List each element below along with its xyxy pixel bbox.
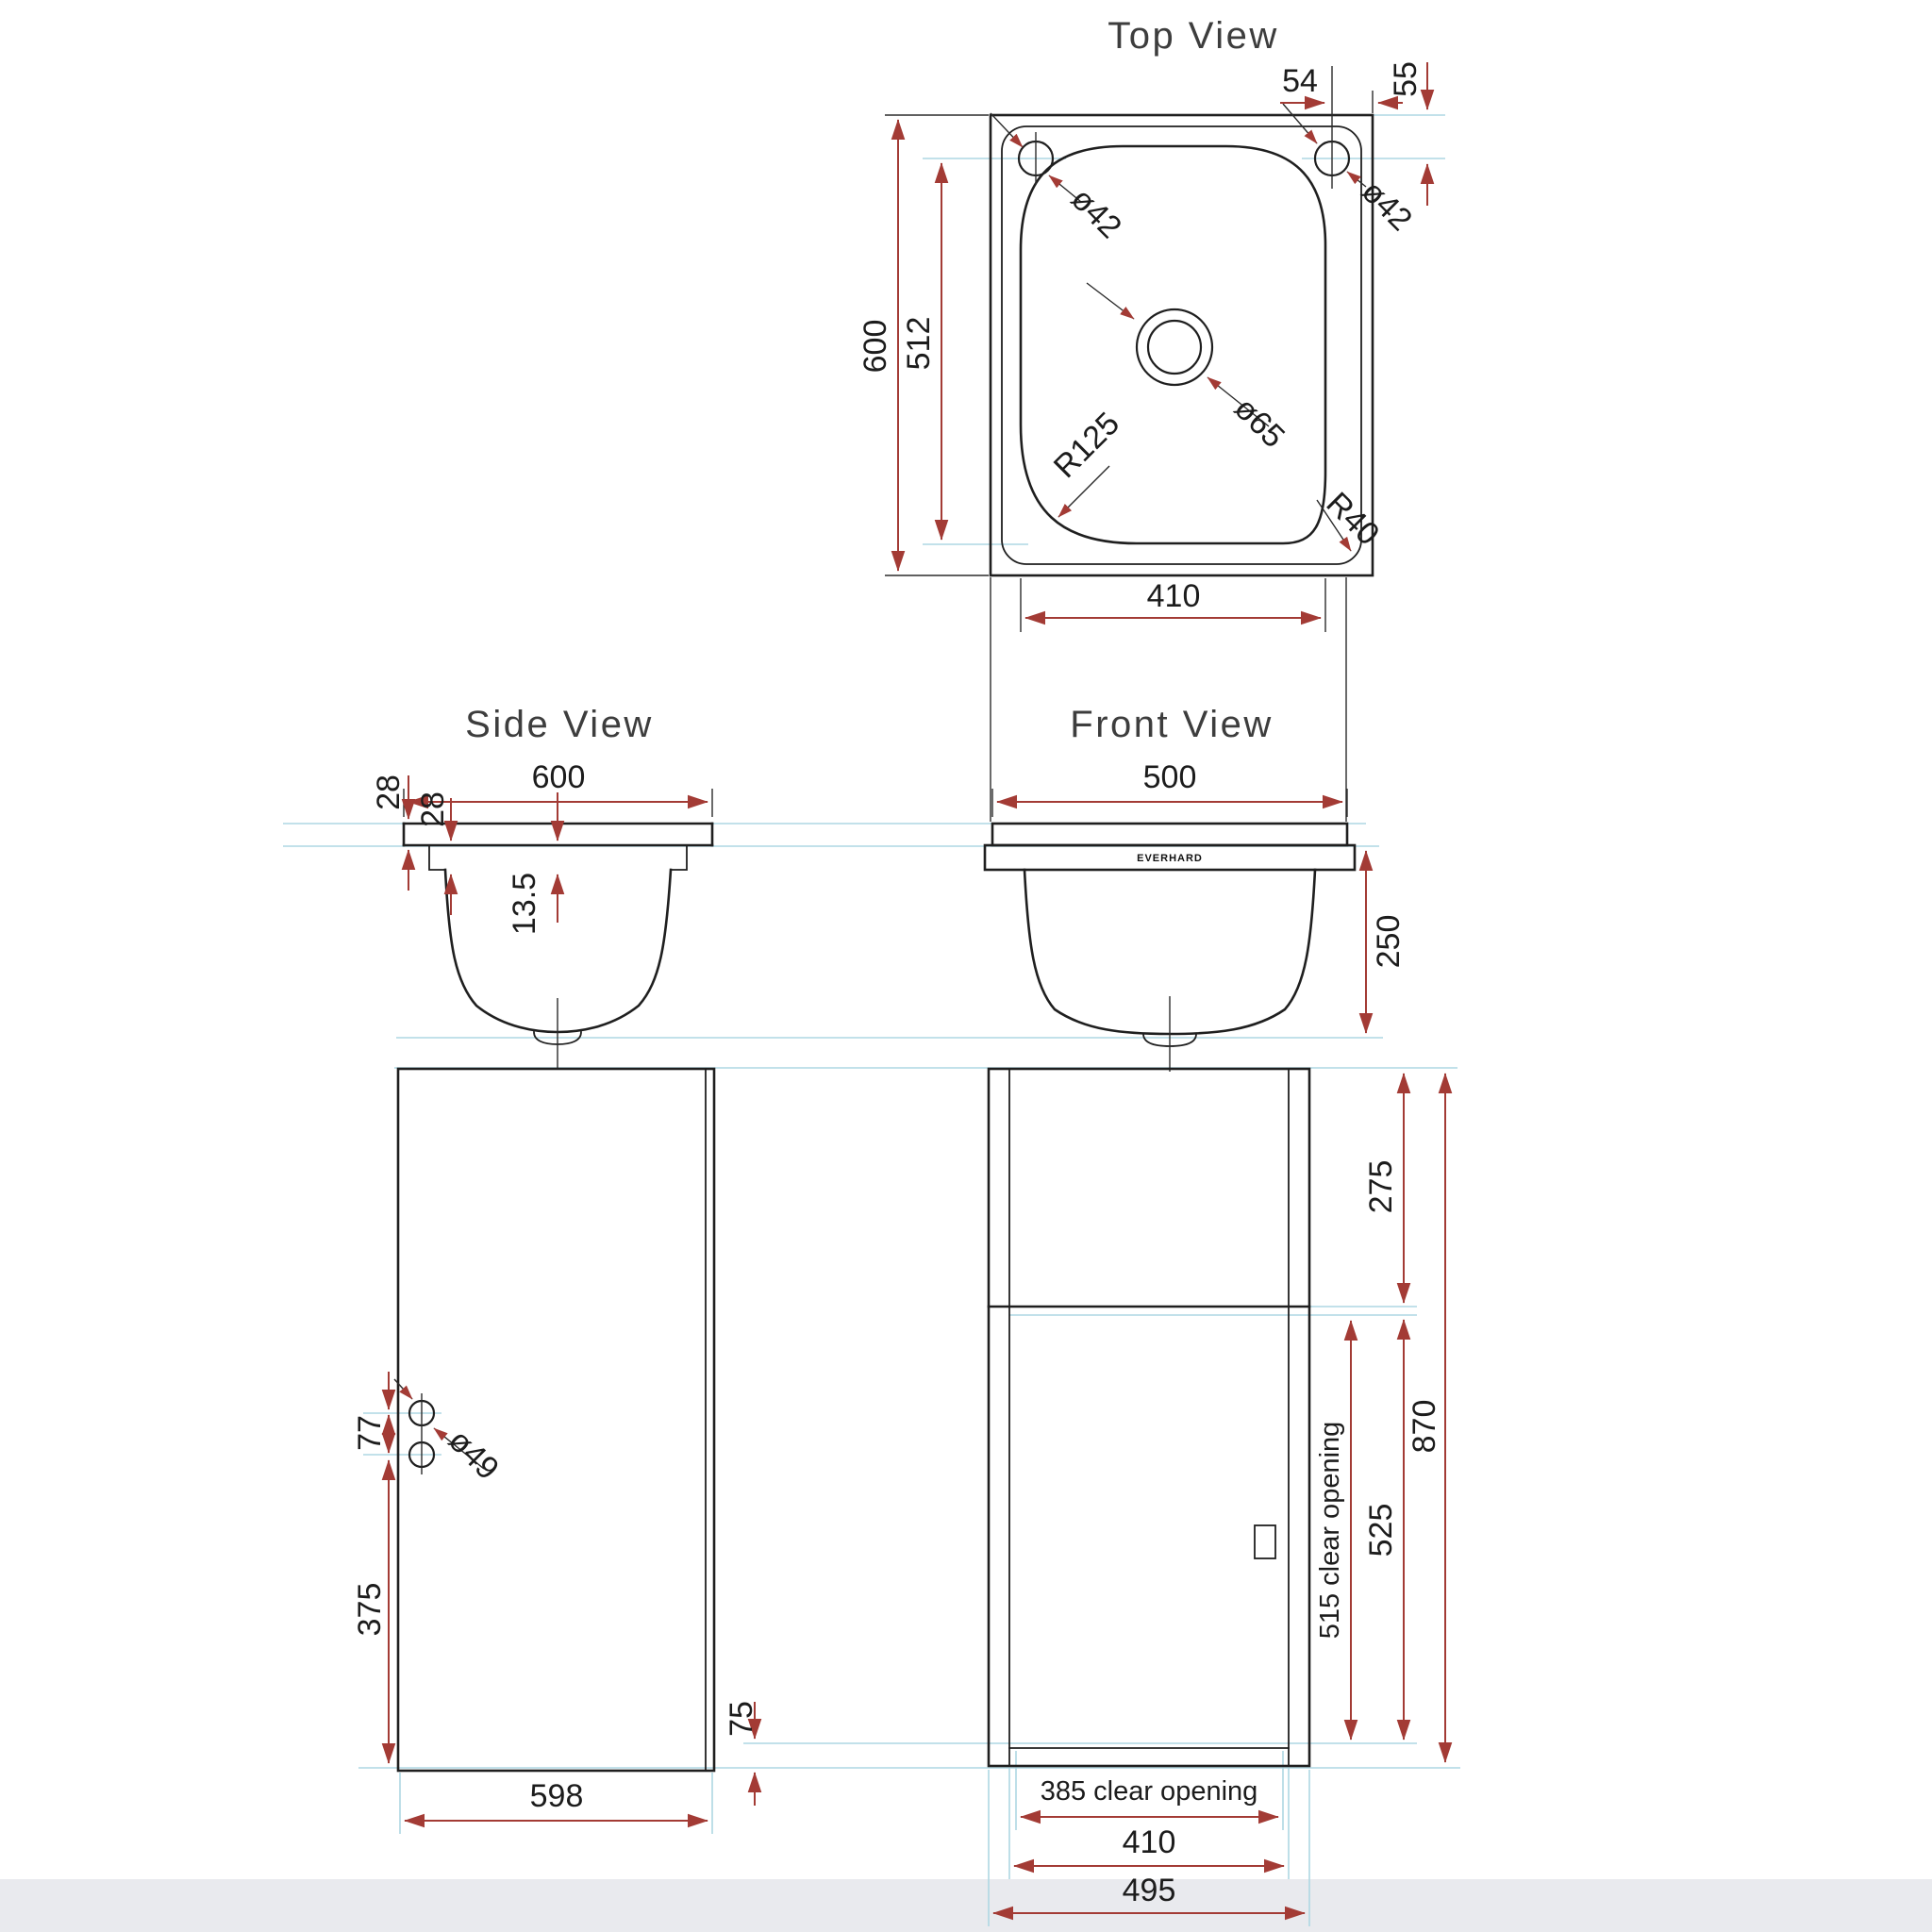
dim-kick-height: 75	[724, 1701, 759, 1806]
dim-bowl-width-label: 410	[1147, 578, 1201, 614]
dim-top-panel-label: 275	[1363, 1160, 1399, 1214]
dim-tap-right-label: ø42	[1355, 174, 1419, 238]
brand-logo: EVERHARD	[1137, 853, 1203, 864]
dim-bowl-width: 410	[1021, 578, 1325, 632]
dim-bowl-depth-label: 250	[1371, 915, 1407, 969]
dim-total-height-label: 870	[1407, 1400, 1442, 1454]
front-tub-profile: EVERHARD	[985, 824, 1355, 1072]
dim-top-inner-height-label: 512	[901, 317, 937, 371]
sink-outer-rect	[991, 115, 1373, 575]
door-handle	[1255, 1525, 1275, 1558]
dim-door-height-label: 525	[1363, 1504, 1399, 1557]
cabinet-front-view: 275 525 515 clear opening 870 75 385 cle…	[724, 1069, 1445, 1913]
dim-door-clear-width-label: 385 clear opening	[1041, 1776, 1258, 1807]
dim-rim-depth-label: 13.5	[507, 873, 542, 935]
dim-tap-offset-h-label: 54	[1282, 63, 1318, 99]
dim-door-clear-width: 385 clear opening	[1021, 1776, 1278, 1817]
dim-front-width-label: 500	[1143, 759, 1197, 795]
dim-radius-bl-label: R125	[1047, 406, 1126, 485]
dim-hole-spacing-label: 77	[352, 1415, 388, 1451]
dim-hole-height: 375	[352, 1460, 389, 1763]
dim-tap-offset-h: 54	[1280, 63, 1403, 113]
technical-drawing-page: Top View ø42 ø42 ø65 R125 R40 6	[0, 0, 1932, 1932]
dim-kick-height-label: 75	[724, 1701, 759, 1737]
front-view: Front View 500 EVERHARD 250	[985, 704, 1407, 1072]
dim-hole-height-label: 375	[352, 1583, 388, 1637]
dim-door-height: 525	[1363, 1320, 1404, 1740]
dim-door-clear-height: 515 clear opening	[1315, 1321, 1351, 1740]
dim-door-width: 410	[1014, 1824, 1284, 1866]
top-view-title: Top View	[1108, 15, 1279, 57]
front-view-title: Front View	[1070, 704, 1273, 745]
dim-hole-dia-label: ø49	[441, 1423, 506, 1487]
dim-cabinet-front-width-label: 495	[1123, 1873, 1176, 1908]
dim-cabinet-side-width-label: 598	[530, 1778, 584, 1814]
side-view-title: Side View	[465, 704, 654, 745]
dim-rim-lower-label: 28	[415, 791, 451, 827]
dim-front-width: 500	[992, 759, 1347, 817]
cabinet-side-view: ø49 77 375 598	[352, 1069, 714, 1821]
dim-bowl-depth: 250	[1366, 851, 1407, 1033]
dim-cabinet-side-width: 598	[405, 1778, 708, 1821]
dim-top-panel: 275	[1363, 1074, 1404, 1303]
cabinet-side-outline	[398, 1069, 714, 1771]
side-view: Side View 600 28 28	[371, 704, 712, 1070]
dim-tap-left-label: ø42	[1064, 181, 1128, 245]
sink-flange-edge	[1002, 126, 1361, 564]
laundry-tub-dimension-diagram: Top View ø42 ø42 ø65 R125 R40 6	[0, 0, 1932, 1932]
dim-hole-spacing: 77	[352, 1372, 389, 1453]
drain-hole-inner	[1148, 321, 1201, 374]
dim-door-width-label: 410	[1123, 1824, 1176, 1860]
dim-radius-br-label: R40	[1320, 486, 1387, 553]
dim-top-height-label: 600	[858, 320, 893, 374]
dim-total-height: 870	[1407, 1074, 1445, 1762]
dim-door-clear-height-label: 515 clear opening	[1315, 1422, 1345, 1640]
footer-band	[0, 1879, 1932, 1932]
dim-rim-depth: 13.5	[507, 792, 558, 935]
dim-rim-lower: 28	[415, 791, 451, 915]
cabinet-front-outline	[989, 1069, 1309, 1766]
dim-rim-upper-label: 28	[371, 774, 407, 810]
dim-tap-offset-v-label: 55	[1388, 61, 1424, 97]
construction-guides	[283, 115, 1460, 1926]
side-tub-profile	[404, 824, 712, 1070]
dim-tap-offset-v: 55	[1388, 61, 1427, 206]
dim-top-inner-height: 512	[901, 163, 941, 540]
top-view: Top View ø42 ø42 ø65 R125 R40 6	[858, 15, 1427, 632]
dim-side-width-label: 600	[532, 759, 586, 795]
